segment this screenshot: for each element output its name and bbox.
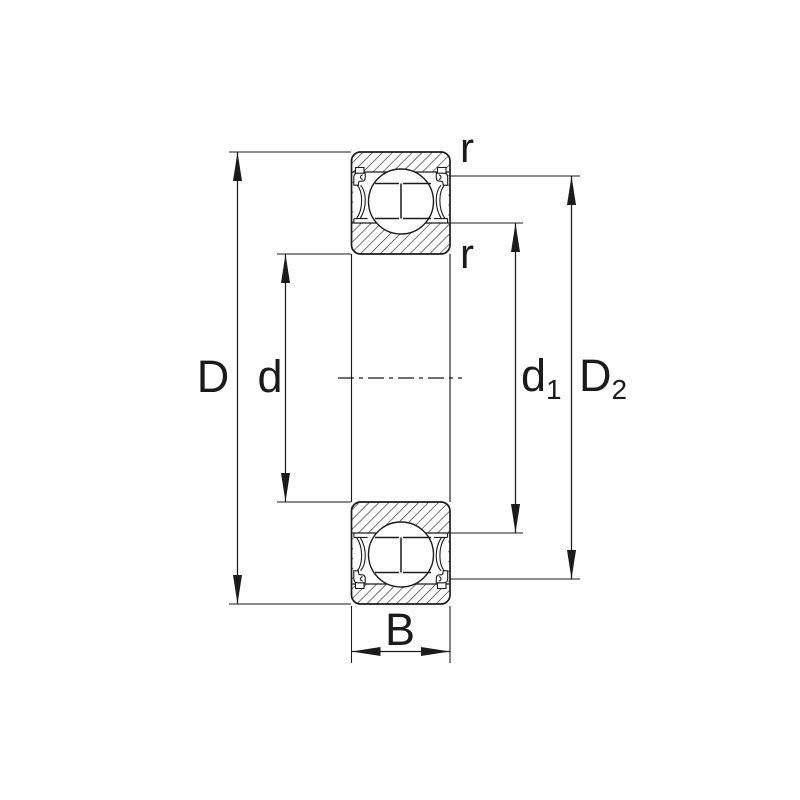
arrow-right-icon [421,647,450,656]
arrow-up-icon [281,254,290,283]
dimension-B: B [352,604,451,663]
bearing-section-top [352,152,451,254]
label-d1: d1 [521,350,562,405]
arrow-down-icon [511,504,520,533]
label-d1-base: d [521,350,546,401]
label-D: D [197,351,230,402]
arrow-down-icon [567,550,576,579]
label-D2-subscript: 2 [612,374,628,405]
label-d1-subscript: 1 [546,374,562,405]
label-D2-base: D [579,350,612,401]
dimension-d: d [257,254,351,502]
bearing-diagram: D d d1 D2 B r r [0,0,800,800]
diagram-canvas: D d d1 D2 B r r [0,0,800,800]
arrow-up-icon [511,223,520,252]
label-D2: D2 [579,350,627,405]
arrow-up-icon [567,176,576,205]
label-r-inner: r [460,230,474,277]
arrow-left-icon [352,647,381,656]
arrow-down-icon [233,575,242,604]
arrow-up-icon [233,152,242,181]
bearing-section-bottom [352,502,451,604]
arrow-down-icon [281,473,290,502]
label-B: B [385,604,415,655]
bearing-body [338,152,462,604]
label-r-outer: r [460,124,474,171]
label-d: d [257,351,282,402]
